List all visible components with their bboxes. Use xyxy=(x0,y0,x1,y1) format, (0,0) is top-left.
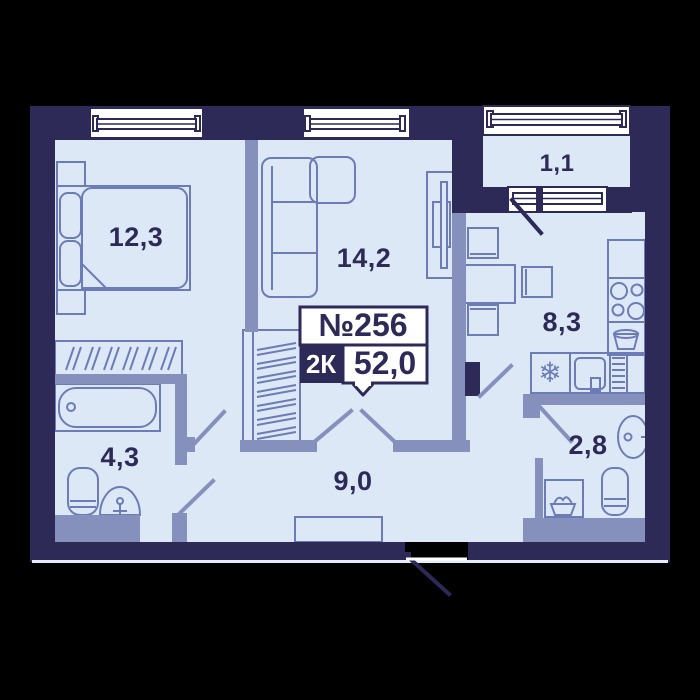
room-label-hallway: 9,0 xyxy=(333,466,372,496)
wall-segment xyxy=(53,374,187,384)
vanity-counter xyxy=(55,515,140,542)
wall-segment xyxy=(175,384,187,465)
wall-column xyxy=(465,362,480,396)
apartment-badge: №256 2К 52,0 xyxy=(300,307,427,395)
wall-segment xyxy=(245,140,258,332)
wall-segment xyxy=(30,542,405,562)
wall-segment xyxy=(468,542,670,562)
wall-segment xyxy=(630,106,670,212)
floor-plan-canvas: ❄ xyxy=(0,0,700,700)
floor-plan: ❄ xyxy=(0,0,700,700)
wall-segment xyxy=(605,187,632,213)
wall-segment xyxy=(30,106,55,562)
balcony-glazing xyxy=(483,106,630,135)
wall-segment xyxy=(393,440,470,452)
room-label-toilet-room: 2,8 xyxy=(568,430,607,460)
fridge-snowflake-icon: ❄ xyxy=(538,356,561,389)
badge-room-type: 2К xyxy=(306,349,336,379)
tv-screen xyxy=(441,182,447,268)
plinth-line xyxy=(32,560,668,563)
window-living xyxy=(303,108,410,138)
wall-segment xyxy=(483,187,510,213)
room-label-kitchen: 8,3 xyxy=(542,307,581,337)
room-label-living: 14,2 xyxy=(337,243,392,273)
wall-segment xyxy=(172,513,187,542)
pillow xyxy=(60,193,81,238)
window-bedroom xyxy=(90,108,203,138)
wall-segment xyxy=(523,394,645,405)
room-label-bathroom: 4,3 xyxy=(100,442,139,472)
badge-apartment-number: №256 xyxy=(318,307,407,343)
balcony-kitchen-window xyxy=(508,187,607,212)
vanity-counter xyxy=(523,518,645,542)
window-divider xyxy=(536,188,543,211)
wall-segment xyxy=(535,458,543,518)
room-label-balcony: 1,1 xyxy=(540,150,575,177)
wall-segment xyxy=(452,212,466,440)
badge-total-area: 52,0 xyxy=(354,345,416,381)
room-label-bedroom: 12,3 xyxy=(109,222,164,252)
wall-segment xyxy=(240,440,317,452)
pillow xyxy=(60,241,81,286)
